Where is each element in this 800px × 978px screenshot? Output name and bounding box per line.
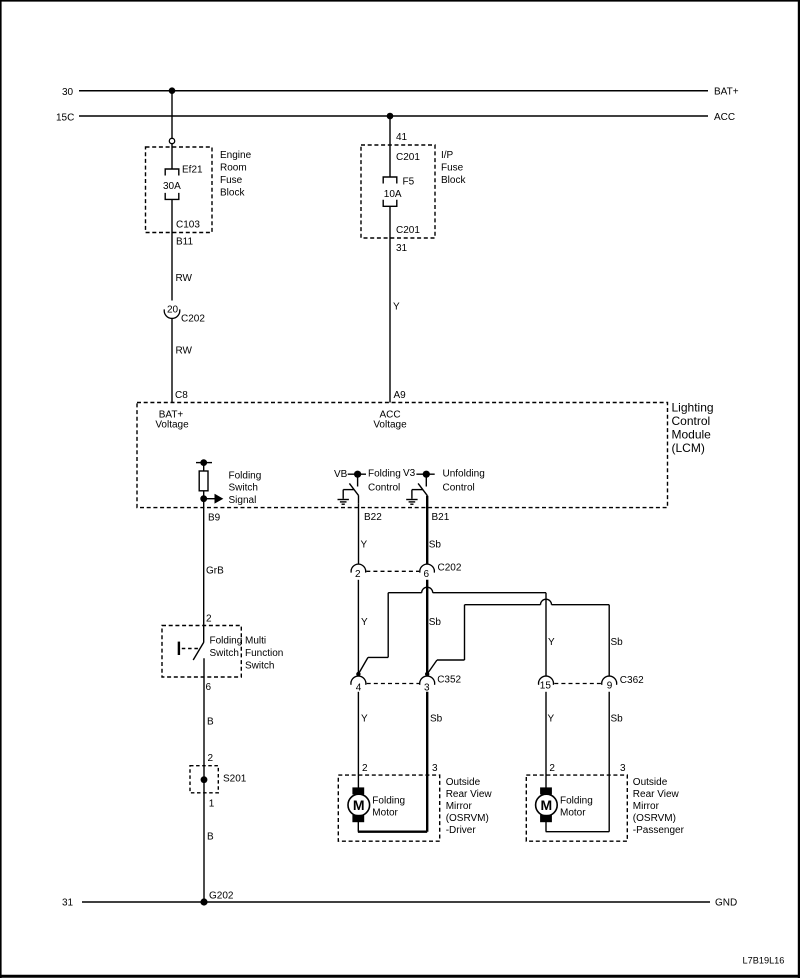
svg-text:B11: B11: [176, 237, 193, 248]
svg-text:1: 1: [209, 798, 215, 809]
svg-text:Voltage: Voltage: [155, 420, 189, 431]
svg-text:C202: C202: [181, 314, 205, 325]
svg-text:M: M: [353, 797, 365, 813]
svg-text:Block: Block: [441, 175, 466, 186]
svg-text:31: 31: [396, 243, 408, 254]
svg-text:Control: Control: [368, 483, 400, 494]
svg-text:Outside: Outside: [633, 777, 668, 788]
svg-text:C103: C103: [176, 220, 200, 231]
svg-text:Fuse: Fuse: [441, 163, 464, 174]
svg-text:Lighting: Lighting: [672, 401, 714, 415]
svg-text:G202: G202: [209, 890, 234, 901]
svg-text:41: 41: [396, 132, 408, 143]
svg-text:L7B19L16: L7B19L16: [743, 955, 785, 965]
svg-text:Folding: Folding: [368, 468, 401, 479]
svg-text:3: 3: [424, 682, 430, 693]
svg-text:Outside: Outside: [446, 777, 481, 788]
svg-text:10A: 10A: [384, 189, 402, 200]
svg-text:Switch: Switch: [245, 660, 274, 671]
svg-text:I/P: I/P: [441, 150, 454, 161]
svg-text:C202: C202: [438, 562, 462, 573]
svg-text:2: 2: [355, 569, 361, 580]
svg-text:2: 2: [362, 763, 368, 774]
svg-text:Rear View: Rear View: [446, 789, 493, 800]
svg-text:Motor: Motor: [560, 808, 586, 819]
svg-text:-Driver: -Driver: [446, 825, 477, 836]
svg-text:Folding: Folding: [372, 795, 405, 806]
svg-text:15C: 15C: [56, 113, 74, 124]
svg-text:Function: Function: [245, 648, 283, 659]
svg-text:Mirror: Mirror: [446, 801, 473, 812]
svg-text:6: 6: [424, 569, 430, 580]
svg-text:C8: C8: [175, 390, 188, 401]
svg-text:Sb: Sb: [611, 714, 624, 725]
svg-text:Fuse: Fuse: [220, 175, 243, 186]
svg-text:9: 9: [607, 680, 613, 691]
svg-text:C201: C201: [396, 152, 420, 163]
svg-text:(OSRVM): (OSRVM): [446, 813, 489, 824]
svg-text:Y: Y: [393, 301, 400, 312]
svg-text:Rear View: Rear View: [633, 789, 680, 800]
svg-text:B9: B9: [208, 512, 221, 523]
svg-text:Folding: Folding: [210, 636, 243, 647]
svg-text:Y: Y: [361, 714, 368, 725]
svg-text:15: 15: [540, 680, 552, 691]
svg-text:Sb: Sb: [429, 539, 442, 550]
svg-text:S201: S201: [223, 774, 247, 785]
svg-text:Mirror: Mirror: [633, 801, 660, 812]
svg-text:Voltage: Voltage: [373, 420, 407, 431]
svg-text:A9: A9: [394, 390, 407, 401]
svg-text:Unfolding: Unfolding: [443, 468, 485, 479]
svg-text:GND: GND: [715, 897, 737, 908]
svg-text:Sb: Sb: [429, 617, 442, 628]
svg-text:RW: RW: [176, 346, 193, 357]
svg-text:4: 4: [356, 682, 362, 693]
svg-text:Y: Y: [361, 539, 368, 550]
svg-text:C362: C362: [620, 675, 644, 686]
svg-text:6: 6: [206, 682, 212, 693]
svg-text:Sb: Sb: [430, 714, 443, 725]
svg-text:30: 30: [62, 87, 74, 98]
svg-text:Engine: Engine: [220, 150, 252, 161]
svg-text:3: 3: [432, 763, 438, 774]
svg-text:Y: Y: [361, 617, 368, 628]
svg-text:Room: Room: [220, 163, 247, 174]
svg-text:Motor: Motor: [372, 808, 398, 819]
svg-text:2: 2: [549, 763, 555, 774]
svg-text:2: 2: [206, 613, 212, 624]
svg-text:M: M: [540, 797, 552, 813]
svg-text:(OSRVM): (OSRVM): [633, 813, 676, 824]
svg-text:B21: B21: [432, 512, 450, 523]
svg-text:BAT+: BAT+: [714, 87, 739, 98]
svg-text:B: B: [207, 831, 214, 842]
svg-text:Module: Module: [672, 428, 712, 442]
svg-text:Signal: Signal: [229, 495, 257, 506]
svg-text:Control: Control: [672, 414, 711, 428]
svg-text:C352: C352: [437, 674, 461, 685]
svg-text:Switch: Switch: [210, 648, 239, 659]
svg-text:Y: Y: [548, 714, 555, 725]
svg-text:Ef21: Ef21: [182, 165, 203, 176]
svg-text:Sb: Sb: [611, 637, 624, 648]
svg-text:VB: VB: [334, 469, 348, 480]
svg-text:Multi: Multi: [245, 636, 266, 647]
svg-text:RW: RW: [176, 273, 193, 284]
svg-text:Folding: Folding: [560, 795, 593, 806]
svg-text:31: 31: [62, 897, 74, 908]
svg-text:Folding: Folding: [229, 470, 262, 481]
svg-text:Y: Y: [548, 637, 555, 648]
svg-text:30A: 30A: [163, 181, 181, 192]
svg-text:B: B: [207, 716, 214, 727]
svg-text:C201: C201: [396, 225, 420, 236]
svg-text:B22: B22: [364, 512, 382, 523]
svg-text:ACC: ACC: [714, 112, 735, 123]
svg-text:V3: V3: [403, 468, 416, 479]
svg-text:F5: F5: [403, 176, 415, 187]
svg-text:-Passenger: -Passenger: [633, 825, 685, 836]
svg-text:Block: Block: [220, 188, 245, 199]
svg-text:2: 2: [208, 753, 214, 764]
svg-text:20: 20: [167, 305, 179, 316]
svg-text:GrB: GrB: [206, 565, 224, 576]
svg-text:Switch: Switch: [229, 483, 258, 494]
svg-text:Control: Control: [443, 483, 475, 494]
svg-text:3: 3: [620, 763, 626, 774]
svg-text:(LCM): (LCM): [672, 441, 705, 455]
